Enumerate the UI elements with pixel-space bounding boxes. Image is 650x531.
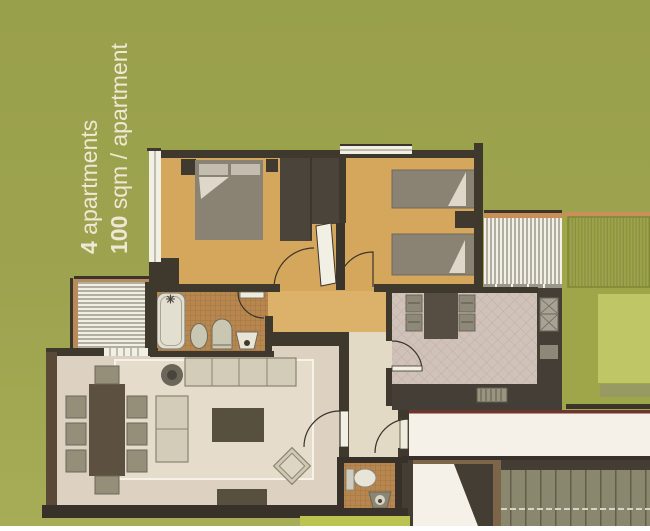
svg-text:100 sqm / apartment: 100 sqm / apartment xyxy=(106,42,132,254)
svg-text:4 apartments: 4 apartments xyxy=(76,120,102,254)
